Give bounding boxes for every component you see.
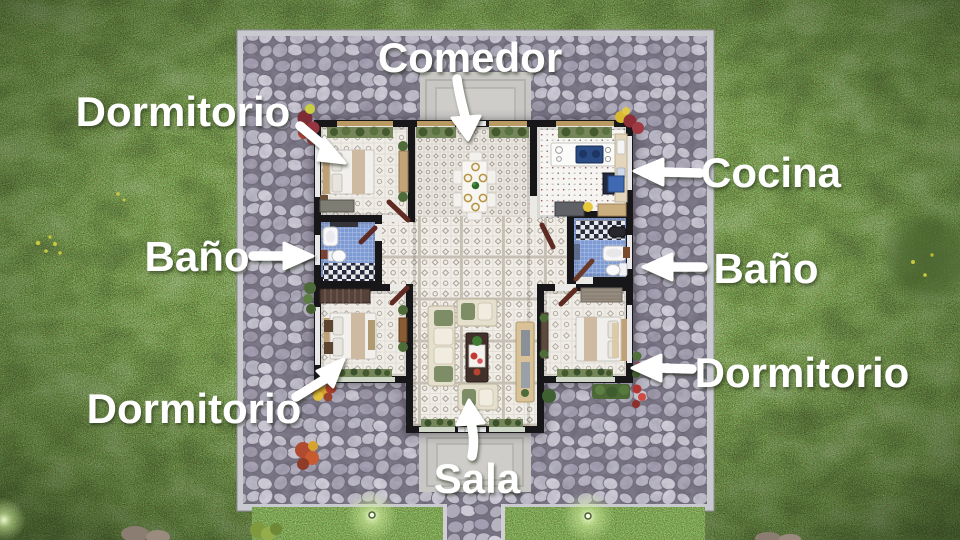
svg-text:Cocina: Cocina bbox=[701, 149, 842, 196]
svg-text:Comedor: Comedor bbox=[378, 34, 562, 81]
svg-text:Baño: Baño bbox=[145, 233, 250, 280]
svg-text:Dormitorio: Dormitorio bbox=[76, 88, 291, 135]
svg-text:Dormitorio: Dormitorio bbox=[695, 349, 910, 396]
svg-text:Dormitorio: Dormitorio bbox=[87, 385, 302, 432]
svg-text:Sala: Sala bbox=[434, 455, 521, 502]
svg-text:Baño: Baño bbox=[714, 245, 819, 292]
